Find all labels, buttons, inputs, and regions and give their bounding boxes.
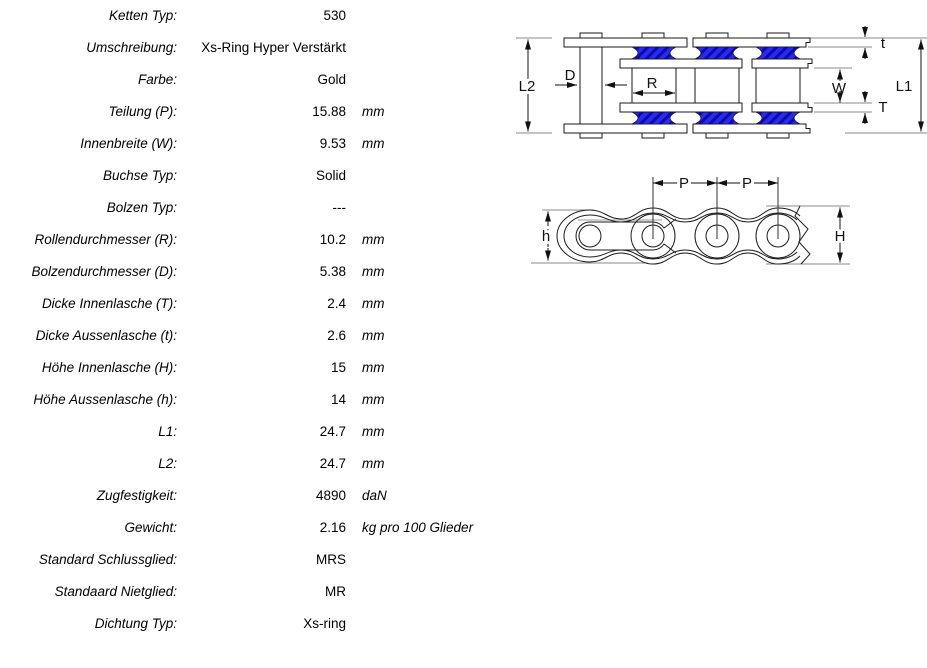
spec-sheet-page: { "table": { "rows": [ {"label": "Ketten… [0, 0, 927, 668]
spec-label: Gewicht: [0, 512, 177, 544]
spec-value: 24.7 [177, 416, 346, 448]
spec-label: Zugfestigkeit: [0, 480, 177, 512]
spec-row: Standaard Nietglied:MR [0, 576, 500, 608]
spec-value: 24.7 [177, 448, 346, 480]
spec-row: L2:24.7mm [0, 448, 500, 480]
spec-row: Höhe Aussenlasche (h):14mm [0, 384, 500, 416]
spec-unit: daN [346, 480, 500, 512]
spec-row: Zugfestigkeit:4890daN [0, 480, 500, 512]
spec-row: Standard Schlussglied:MRS [0, 544, 500, 576]
spec-row: L1:24.7mm [0, 416, 500, 448]
spec-row: Dicke Aussenlasche (t):2.6mm [0, 320, 500, 352]
spec-unit [346, 608, 500, 640]
dim-label-L1: L1 [896, 78, 913, 95]
spec-label: Höhe Innenlasche (H): [0, 352, 177, 384]
spec-value: 2.6 [177, 320, 346, 352]
spec-label: L1: [0, 416, 177, 448]
seal [756, 47, 800, 59]
seal [632, 47, 676, 59]
spec-value: Xs-ring [177, 608, 346, 640]
spec-label: L2: [0, 448, 177, 480]
seal [695, 112, 739, 124]
spec-value: 4890 [177, 480, 346, 512]
spec-unit: kg pro 100 Glieder [346, 512, 500, 544]
pin-body [580, 47, 602, 124]
spec-row: Dichtung Typ:Xs-ring [0, 608, 500, 640]
chain-side-view: P P h H [531, 175, 850, 264]
spec-value: 14 [177, 384, 346, 416]
spec-label: Dichtung Typ: [0, 608, 177, 640]
dim-label-L2: L2 [519, 78, 536, 95]
spec-value: MR [177, 576, 346, 608]
spec-label: Standard Schlussglied: [0, 544, 177, 576]
dim-label-W: W [832, 80, 847, 97]
spec-label: Höhe Aussenlasche (h): [0, 384, 177, 416]
dim-label-R: R [647, 75, 658, 92]
dim-label-D: D [565, 67, 576, 84]
dim-label-P2: P [742, 175, 752, 192]
spec-unit: mm [346, 384, 500, 416]
spec-unit: mm [346, 320, 500, 352]
side-view-dimensions [548, 183, 840, 263]
spec-unit: mm [346, 352, 500, 384]
master-link-clip [576, 219, 676, 253]
spec-label: Dicke Aussenlasche (t): [0, 320, 177, 352]
spec-unit [346, 544, 500, 576]
chain-technical-drawing: L2 D R t W T L1 [0, 0, 927, 320]
dim-label-H: H [835, 228, 846, 245]
spec-value: MRS [177, 544, 346, 576]
dim-label-P1: P [679, 175, 689, 192]
spec-row: Höhe Innenlasche (H):15mm [0, 352, 500, 384]
dim-label-h: h [542, 228, 550, 245]
spec-unit: mm [346, 416, 500, 448]
seal [695, 47, 739, 59]
spec-row: Gewicht:2.16kg pro 100 Glieder [0, 512, 500, 544]
spec-unit: mm [346, 448, 500, 480]
break-line [795, 206, 810, 264]
seal [756, 112, 800, 124]
spec-unit [346, 576, 500, 608]
chain-top-view: L2 D R t W T L1 [516, 26, 927, 138]
dim-label-T: T [878, 99, 887, 116]
spec-value: 2.16 [177, 512, 346, 544]
spec-label: Standaard Nietglied: [0, 576, 177, 608]
seal [632, 112, 676, 124]
spec-value: 15 [177, 352, 346, 384]
